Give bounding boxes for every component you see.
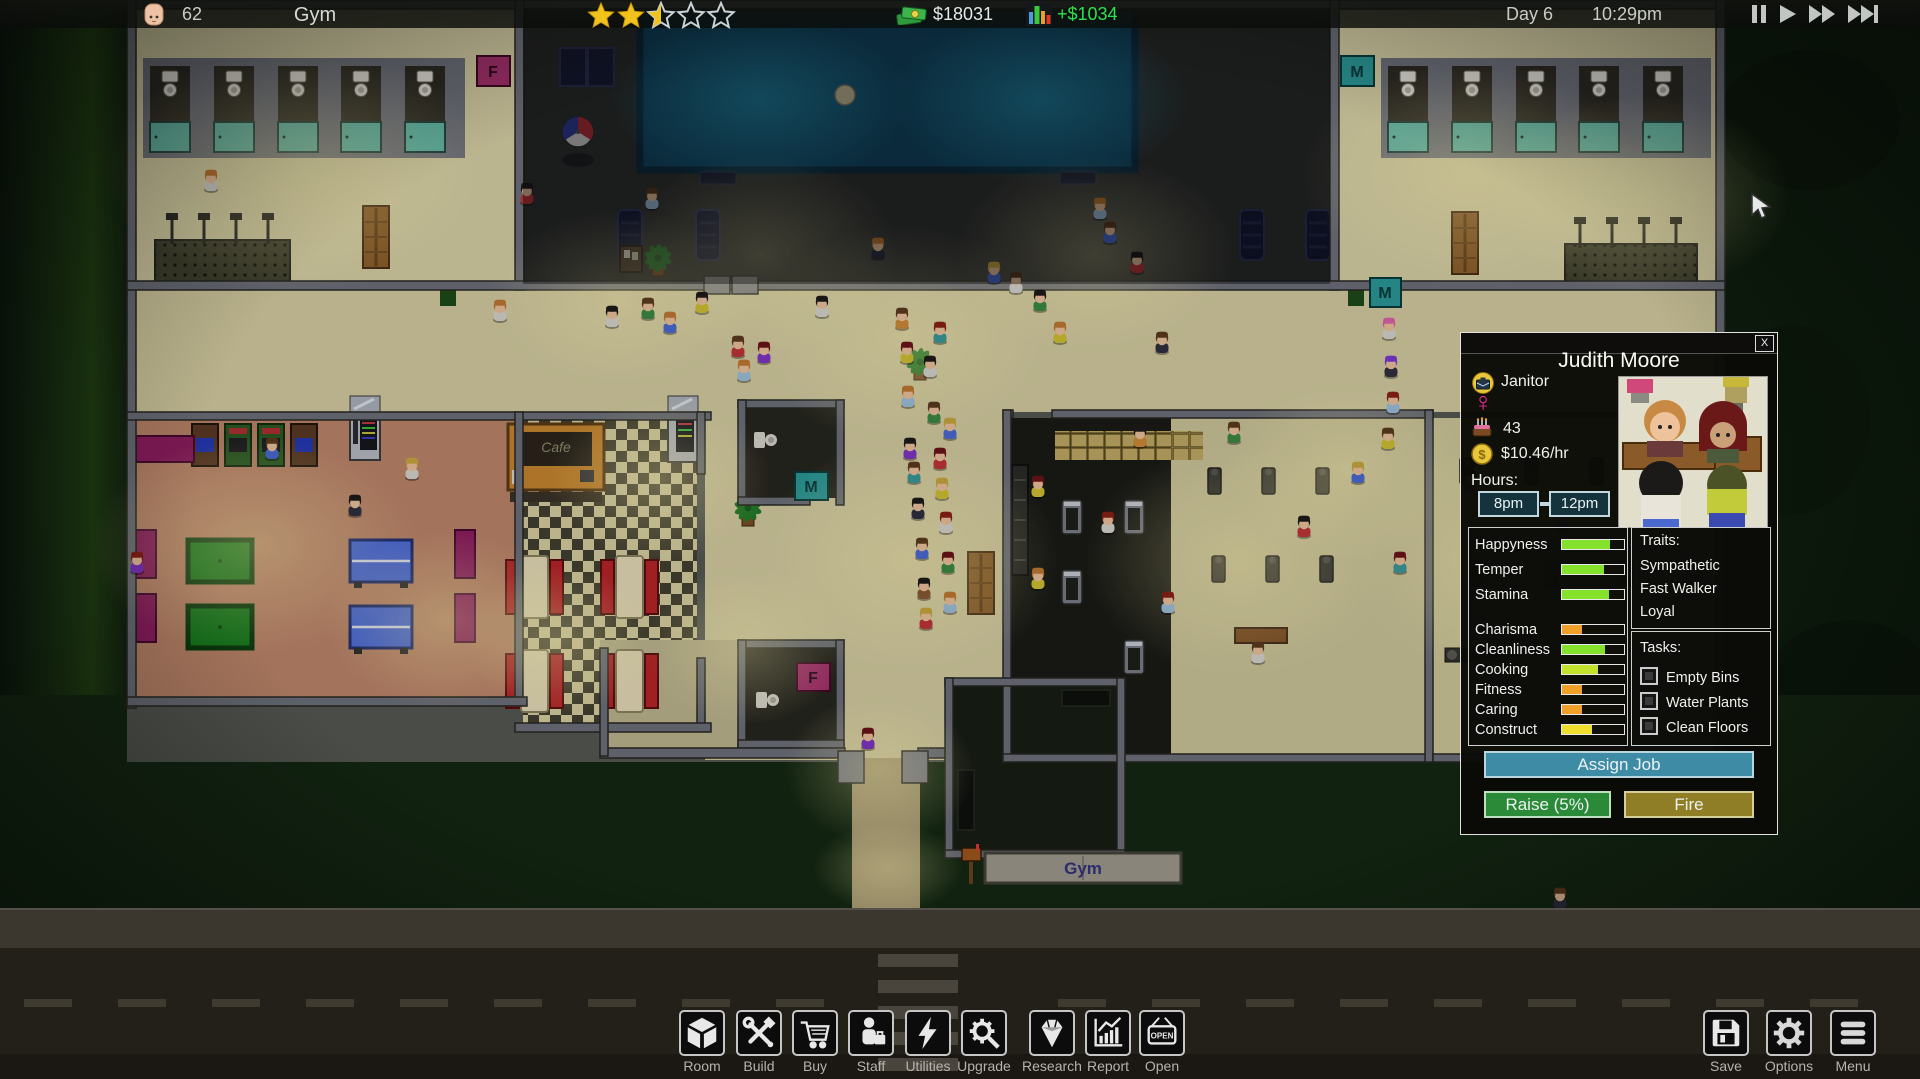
- stat-bar: [1561, 564, 1625, 575]
- stat-bar: [1561, 589, 1625, 600]
- pause-button[interactable]: [1752, 5, 1766, 23]
- utilities-icon: [909, 1014, 947, 1052]
- traits-label: Traits:: [1640, 533, 1680, 549]
- staff-button[interactable]: [848, 1010, 894, 1056]
- utilities-button[interactable]: [905, 1010, 951, 1056]
- income-chart-icon: [1026, 3, 1052, 26]
- svg-text:OPEN: OPEN: [1151, 1032, 1174, 1041]
- stat-bar: [1561, 684, 1625, 695]
- job-title: Janitor: [1501, 373, 1549, 391]
- stat-label: Construct: [1475, 722, 1537, 738]
- research-button[interactable]: [1029, 1010, 1075, 1056]
- stat-bar: [1561, 704, 1625, 715]
- gym-title: Gym: [270, 4, 360, 27]
- day-counter: Day 6: [1506, 4, 1553, 25]
- portrait-person-1: [1644, 400, 1686, 457]
- tasks-box: Tasks: Empty Bins Water Plants Clean Flo…: [1631, 631, 1771, 746]
- build-button[interactable]: [736, 1010, 782, 1056]
- trait-item: Loyal: [1640, 604, 1675, 620]
- traits-box: Traits: Sympathetic Fast Walker Loyal: [1631, 527, 1771, 629]
- stat-bar: [1561, 644, 1625, 655]
- buy-button[interactable]: [792, 1010, 838, 1056]
- trait-item: Sympathetic: [1640, 558, 1720, 574]
- options-button[interactable]: [1766, 1010, 1812, 1056]
- upgrade-icon: [965, 1014, 1003, 1052]
- gym-sign-text: Gym: [1064, 859, 1102, 878]
- task-checkbox[interactable]: [1640, 667, 1658, 685]
- star-icon: [586, 1, 616, 29]
- task-checkbox[interactable]: [1640, 717, 1658, 735]
- star-icon: [676, 1, 706, 29]
- save-icon: [1707, 1014, 1745, 1052]
- skip-button[interactable]: [1848, 5, 1878, 23]
- mouse-cursor: [1750, 193, 1774, 221]
- staff-icon: [852, 1014, 890, 1052]
- buy-icon: [796, 1014, 834, 1052]
- report-icon: [1089, 1014, 1127, 1052]
- task-checkbox[interactable]: [1640, 692, 1658, 710]
- wage-value: $10.46/hr: [1501, 445, 1569, 463]
- stat-label: Stamina: [1475, 587, 1528, 603]
- clock: 10:29pm: [1592, 4, 1662, 25]
- open-button[interactable]: OPEN: [1139, 1010, 1185, 1056]
- room-icon: [683, 1014, 721, 1052]
- stat-bar: [1561, 664, 1625, 675]
- assign-job-button[interactable]: Assign Job: [1484, 751, 1754, 778]
- fast-forward-button[interactable]: [1809, 5, 1835, 23]
- stat-label: Charisma: [1475, 622, 1537, 638]
- save-button[interactable]: [1703, 1010, 1749, 1056]
- menu-icon: [1834, 1014, 1872, 1052]
- stat-bar: [1561, 624, 1625, 635]
- open-icon: OPEN: [1143, 1014, 1181, 1052]
- hours-dash: [1540, 502, 1549, 506]
- money-amount: $18031: [933, 4, 993, 25]
- stat-label: Cleanliness: [1475, 642, 1550, 658]
- gear-icon: [1770, 1014, 1808, 1052]
- age-icon: [1471, 417, 1493, 439]
- stat-label: Temper: [1475, 562, 1523, 578]
- stat-label: Cooking: [1475, 662, 1528, 678]
- menu-button[interactable]: [1830, 1010, 1876, 1056]
- visitors-icon: [143, 3, 165, 26]
- shift-end-button[interactable]: 12pm: [1549, 491, 1610, 517]
- task-item: Water Plants: [1640, 692, 1748, 710]
- stat-label: Happyness: [1475, 537, 1548, 553]
- money-icon: [895, 4, 929, 25]
- wage-icon: $: [1471, 443, 1493, 465]
- star-rating: [586, 1, 736, 29]
- portrait-person-3: [1639, 461, 1683, 527]
- gender-icon: ♀: [1473, 387, 1493, 418]
- age-value: 43: [1503, 420, 1521, 438]
- stat-label: Fitness: [1475, 682, 1522, 698]
- toolbar-label: Menu: [1813, 1058, 1893, 1074]
- play-button[interactable]: [1780, 5, 1796, 23]
- trait-item: Fast Walker: [1640, 581, 1717, 597]
- build-icon: [740, 1014, 778, 1052]
- stats-box: Happyness Temper Stamina Charisma Cleanl…: [1468, 527, 1628, 746]
- upgrade-button[interactable]: [961, 1010, 1007, 1056]
- staff-name: Judith Moore: [1461, 349, 1777, 373]
- task-item: Empty Bins: [1640, 667, 1739, 685]
- hours-label: Hours:: [1471, 472, 1518, 490]
- staff-portrait: [1618, 376, 1768, 528]
- fire-button[interactable]: Fire: [1624, 791, 1754, 818]
- staff-panel: X Judith Moore Janitor ♀ 43 $ $10.46/hr …: [1460, 332, 1778, 835]
- tasks-label: Tasks:: [1640, 640, 1681, 656]
- star-icon: [706, 1, 736, 29]
- toolbar-label: Open: [1122, 1058, 1202, 1074]
- star-icon: [646, 1, 676, 29]
- report-button[interactable]: [1085, 1010, 1131, 1056]
- top-status-bar: 62 Gym $18031 +$1034 Day 6 10:29pm: [0, 0, 1920, 28]
- svg-text:$: $: [1478, 447, 1486, 462]
- star-icon: [616, 1, 646, 29]
- shift-start-button[interactable]: 8pm: [1478, 491, 1539, 517]
- task-item: Clean Floors: [1640, 717, 1748, 735]
- raise-button[interactable]: Raise (5%): [1484, 791, 1611, 818]
- visitor-count: 62: [182, 4, 202, 25]
- research-icon: [1033, 1014, 1071, 1052]
- income-amount: +$1034: [1057, 4, 1118, 25]
- room-button[interactable]: [679, 1010, 725, 1056]
- stat-bar: [1561, 539, 1625, 550]
- stat-bar: [1561, 724, 1625, 735]
- portrait-person-4: [1707, 465, 1747, 527]
- stat-label: Caring: [1475, 702, 1518, 718]
- street: [0, 908, 1920, 1079]
